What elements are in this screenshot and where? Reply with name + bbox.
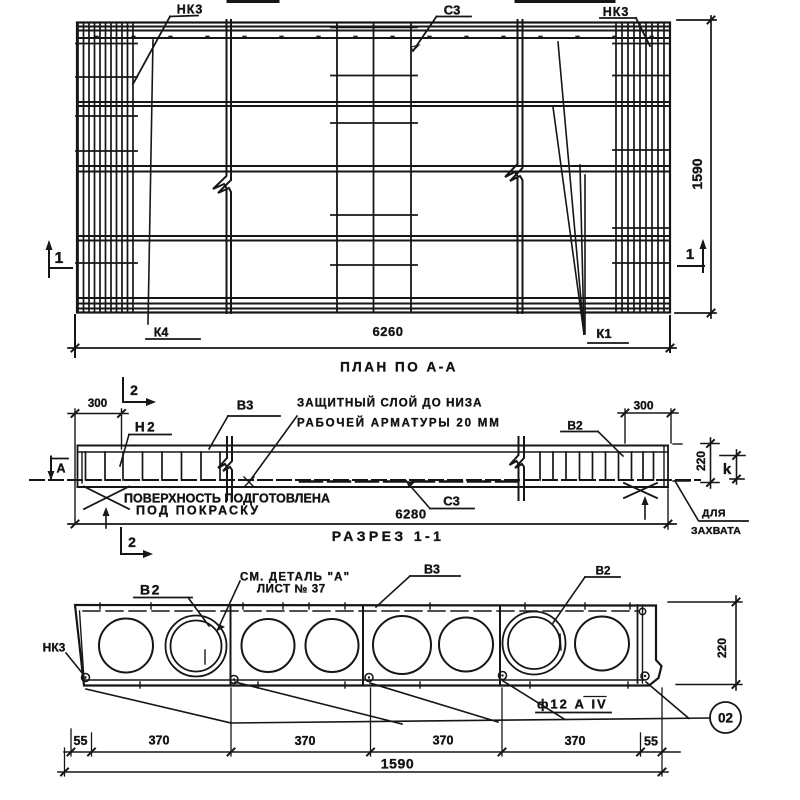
svg-text:370: 370 [433, 734, 454, 748]
svg-text:370: 370 [565, 734, 586, 748]
svg-text:02: 02 [718, 711, 733, 726]
svg-text:1590: 1590 [689, 158, 705, 189]
svg-text:Н2: Н2 [135, 420, 157, 435]
svg-text:НК3: НК3 [43, 641, 66, 655]
svg-text:220: 220 [694, 451, 708, 471]
svg-text:К1: К1 [596, 326, 611, 341]
svg-text:С3: С3 [443, 494, 460, 509]
svg-text:6260: 6260 [373, 324, 404, 339]
svg-text:А: А [56, 462, 65, 476]
svg-text:370: 370 [295, 734, 316, 748]
svg-text:С3: С3 [444, 3, 461, 18]
svg-text:1590: 1590 [381, 756, 415, 772]
svg-text:ЛИСТ № 37: ЛИСТ № 37 [257, 584, 326, 596]
svg-text:55: 55 [644, 735, 658, 749]
svg-text:6280: 6280 [395, 507, 426, 522]
svg-text:РАЗРЕЗ 1-1: РАЗРЕЗ 1-1 [332, 528, 445, 544]
svg-text:370: 370 [149, 734, 170, 748]
svg-text:220: 220 [715, 638, 729, 658]
svg-text:ф12 А IV: ф12 А IV [537, 697, 608, 712]
svg-text:1: 1 [55, 250, 64, 267]
svg-text:В2: В2 [140, 582, 161, 598]
svg-text:В3: В3 [424, 563, 440, 577]
svg-text:ДЛЯ: ДЛЯ [702, 508, 726, 520]
svg-text:В2: В2 [596, 566, 611, 578]
svg-text:В2: В2 [567, 419, 583, 433]
svg-text:НК3: НК3 [603, 5, 630, 19]
svg-text:НК3: НК3 [177, 3, 204, 17]
svg-text:В3: В3 [237, 398, 254, 413]
svg-text:300: 300 [633, 399, 653, 413]
svg-text:К4: К4 [154, 326, 169, 340]
svg-text:2: 2 [130, 382, 138, 398]
svg-text:2: 2 [128, 534, 136, 550]
svg-text:ЗАЩИТНЫЙ СЛОЙ ДО НИЗА: ЗАЩИТНЫЙ СЛОЙ ДО НИЗА [297, 397, 483, 410]
svg-text:55: 55 [74, 734, 88, 748]
svg-text:300: 300 [88, 398, 107, 410]
svg-text:ПОД ПОКРАСКУ: ПОД ПОКРАСКУ [136, 504, 260, 518]
svg-text:СМ. ДЕТАЛЬ "А": СМ. ДЕТАЛЬ "А" [240, 572, 350, 584]
svg-text:ЗАХВАТА: ЗАХВАТА [691, 525, 741, 537]
svg-text:1: 1 [686, 246, 694, 263]
svg-text:РАБОЧЕЙ АРМАТУРЫ 20 ММ: РАБОЧЕЙ АРМАТУРЫ 20 ММ [297, 417, 501, 430]
svg-text:ПЛАН ПО А-А: ПЛАН ПО А-А [340, 360, 458, 375]
svg-text:k: k [723, 461, 732, 478]
